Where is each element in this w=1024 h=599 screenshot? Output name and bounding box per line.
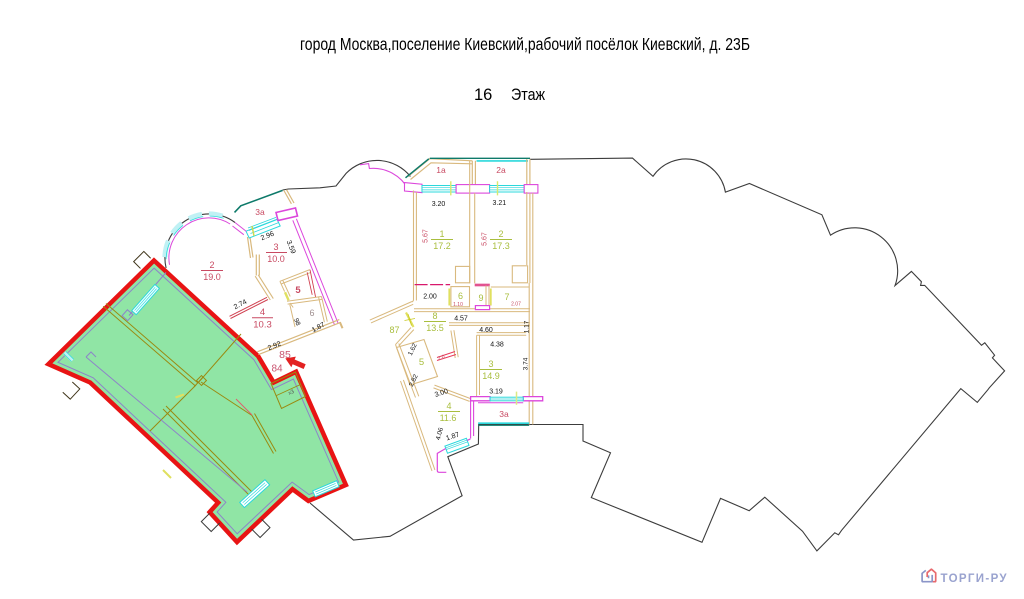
svg-text:1.87: 1.87 <box>311 322 326 335</box>
svg-text:2.07: 2.07 <box>511 302 521 308</box>
svg-text:3.00: 3.00 <box>434 388 449 399</box>
svg-text:98: 98 <box>292 317 301 327</box>
svg-text:Этаж: Этаж <box>511 86 545 104</box>
svg-text:11.6: 11.6 <box>440 413 457 423</box>
svg-text:7: 7 <box>504 292 509 302</box>
svg-text:13.5: 13.5 <box>426 323 444 333</box>
svg-text:1a: 1a <box>436 165 446 175</box>
svg-text:3: 3 <box>488 359 493 369</box>
svg-text:2: 2 <box>498 229 503 239</box>
svg-text:ТОРГИ-РУ: ТОРГИ-РУ <box>941 573 1008 585</box>
svg-text:8: 8 <box>432 311 437 321</box>
svg-text:2.82: 2.82 <box>408 373 420 388</box>
svg-text:3.21: 3.21 <box>492 200 506 207</box>
svg-text:9: 9 <box>478 293 483 303</box>
svg-text:3.19: 3.19 <box>489 389 503 396</box>
svg-text:3a: 3a <box>499 409 509 419</box>
svg-text:5: 5 <box>419 357 424 368</box>
svg-text:5: 5 <box>295 285 301 296</box>
svg-text:2a: 2a <box>496 165 506 175</box>
svg-text:5.67: 5.67 <box>423 229 430 243</box>
svg-text:10.3: 10.3 <box>253 320 272 331</box>
svg-text:город Москва,поселение Киевски: город Москва,поселение Киевский,рабочий … <box>300 34 750 54</box>
svg-text:4.38: 4.38 <box>490 342 504 349</box>
svg-text:3: 3 <box>273 242 278 252</box>
svg-text:19.0: 19.0 <box>203 272 221 282</box>
svg-text:4: 4 <box>260 307 265 318</box>
svg-text:16: 16 <box>474 86 492 104</box>
svg-text:1.17: 1.17 <box>524 320 531 333</box>
svg-text:17.3: 17.3 <box>492 241 510 251</box>
svg-text:17.2: 17.2 <box>433 241 451 251</box>
svg-text:1: 1 <box>439 229 444 239</box>
svg-text:3a: 3a <box>255 207 265 217</box>
svg-text:4.06: 4.06 <box>435 427 445 441</box>
svg-text:6: 6 <box>309 308 314 318</box>
svg-text:1.10: 1.10 <box>453 302 463 308</box>
svg-text:10.0: 10.0 <box>267 254 285 264</box>
svg-text:14.9: 14.9 <box>482 371 500 381</box>
svg-text:6: 6 <box>458 291 463 301</box>
svg-text:2.00: 2.00 <box>423 294 437 301</box>
svg-text:2: 2 <box>209 260 214 270</box>
svg-text:87: 87 <box>389 325 399 335</box>
svg-text:4: 4 <box>446 401 451 411</box>
svg-text:4.57: 4.57 <box>454 316 468 323</box>
svg-text:2.74: 2.74 <box>233 299 248 311</box>
svg-text:84: 84 <box>271 364 283 375</box>
svg-text:3.20: 3.20 <box>432 201 446 208</box>
svg-text:5.67: 5.67 <box>482 232 489 246</box>
svg-text:3.74: 3.74 <box>523 357 530 370</box>
